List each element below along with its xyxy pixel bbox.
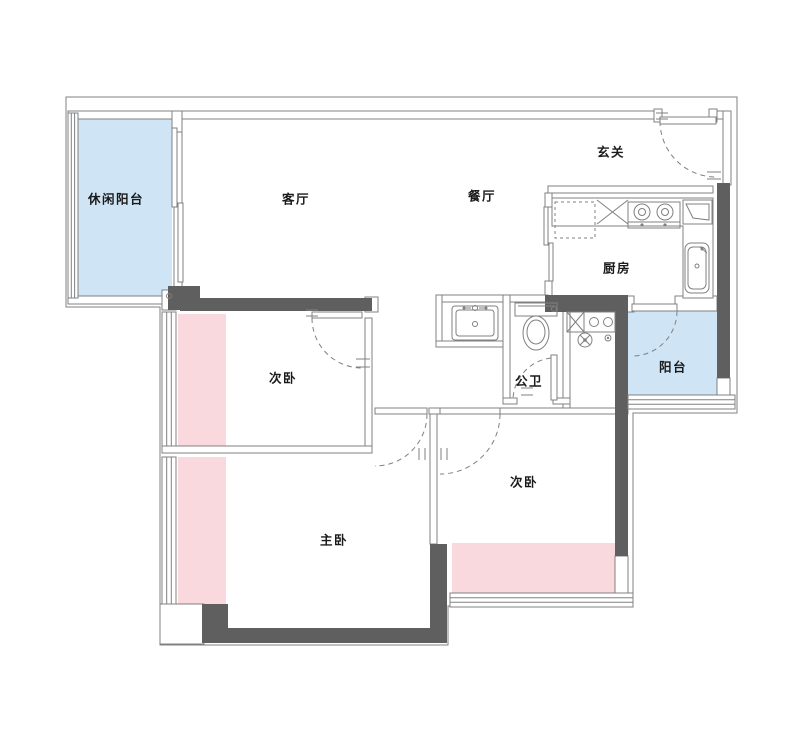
window-bedroom-right <box>450 593 633 607</box>
room-label-entry-hall: 玄关 <box>597 142 625 161</box>
floor-plan: 休闲阳台 客厅 餐厅 玄关 厨房 阳台 公卫 次卧 次卧 主卧 <box>0 0 800 743</box>
room-label-balcony: 阳台 <box>659 357 687 376</box>
bedroom-left-door <box>306 310 370 368</box>
window-bedroom-left <box>162 312 176 446</box>
floor-drain-icon <box>578 333 611 347</box>
window-balcony <box>628 395 735 409</box>
room-label-dining-room: 餐厅 <box>468 186 496 205</box>
room-label-kitchen: 厨房 <box>603 258 631 277</box>
bedroom-right-door <box>440 408 500 474</box>
laundry-counter <box>567 312 615 332</box>
entry-door <box>656 113 721 179</box>
room-label-bedroom-right: 次卧 <box>510 472 538 491</box>
kitchen-counter <box>552 198 713 298</box>
sliding-door-icon <box>172 128 183 286</box>
room-label-living-room: 客厅 <box>282 189 310 208</box>
room-label-bedroom-left: 次卧 <box>269 368 297 387</box>
room-label-master-bedroom: 主卧 <box>320 530 348 549</box>
balcony-door <box>632 304 677 356</box>
room-label-bathroom: 公卫 <box>515 371 543 390</box>
room-label-leisure-balcony: 休闲阳台 <box>88 189 144 208</box>
window-leisure-balcony <box>68 113 78 298</box>
window-master-bedroom <box>162 457 176 604</box>
washbasin-icon <box>452 306 498 341</box>
